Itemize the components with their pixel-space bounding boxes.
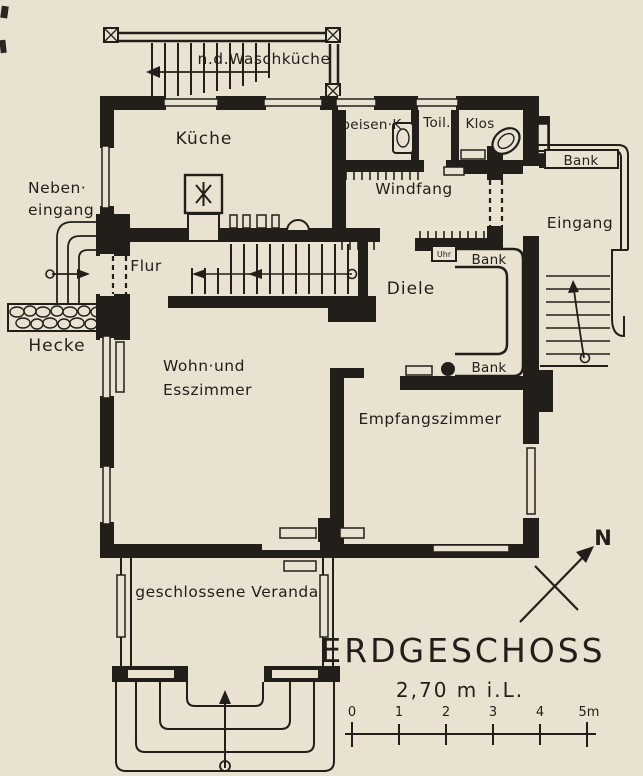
- label-clock: Uhr: [437, 250, 452, 259]
- compass-cross: [535, 566, 578, 610]
- veranda-window-pane: [117, 575, 125, 637]
- label-living-2: Esszimmer: [163, 381, 252, 399]
- pier-bottom-center: [318, 518, 338, 546]
- scale-tick-4: 4: [536, 705, 544, 720]
- label-basement-stairs: n.d.Waschküche: [198, 50, 331, 68]
- plan-title: ERDGESCHOSS: [320, 631, 605, 670]
- window-pane: [433, 545, 509, 552]
- main-staircase: [192, 244, 357, 294]
- label-veranda: geschlossene Veranda: [135, 583, 319, 601]
- window-pane: [116, 342, 124, 392]
- radiator: [406, 366, 432, 375]
- stair-direction-arrow: [192, 269, 357, 279]
- scan-marks: [0, 6, 9, 54]
- label-toilet: Toil.: [422, 115, 451, 131]
- label-reception: Empfangszimmer: [359, 410, 502, 428]
- scale-tick-0: 0: [348, 705, 356, 720]
- wall-stair-right: [358, 242, 368, 300]
- sink: [287, 220, 309, 231]
- window-pane: [264, 99, 322, 106]
- window-pane: [416, 99, 458, 106]
- label-hallway: Flur: [130, 257, 162, 275]
- label-side-entrance-2: eingang: [28, 201, 94, 219]
- scale-tick-2: 2: [442, 705, 450, 720]
- wall-kitchen-bottom: [100, 228, 380, 242]
- stair-treads: [192, 244, 348, 294]
- label-vestibule: Windfang: [375, 180, 453, 198]
- scale-bar: [345, 722, 596, 747]
- window-pane: [527, 448, 535, 514]
- window-pane: [164, 99, 218, 106]
- scale-tick-5: 5m: [579, 705, 600, 720]
- veranda-entry-arrow: [219, 690, 231, 771]
- wc-door-leaf: [444, 167, 464, 175]
- hedge-stones: [10, 306, 110, 329]
- window-pane: [336, 99, 376, 106]
- label-bench-top: Bank: [471, 252, 506, 268]
- label-living-1: Wohn·und: [163, 357, 245, 375]
- label-hall: Diele: [387, 279, 435, 299]
- pier-left-upper: [96, 214, 130, 256]
- label-pantry: Speisen·K: [333, 117, 403, 133]
- entrance-porch: [537, 145, 628, 366]
- label-north: N: [594, 526, 612, 550]
- porch-arrow: [568, 280, 590, 363]
- window-pane: [103, 466, 110, 524]
- label-side-entrance-1: Neben·: [28, 179, 86, 197]
- wall-toilet-wc: [451, 110, 459, 162]
- label-bench-porch: Bank: [563, 153, 598, 169]
- wall-stair-bottom: [168, 296, 330, 308]
- counter-units: [230, 215, 279, 228]
- wall-living-reception: [330, 368, 344, 544]
- window-pane: [102, 146, 109, 208]
- compass-needle: [520, 554, 586, 622]
- plan-subtitle: 2,70 m i.L.: [396, 678, 524, 702]
- label-entrance: Eingang: [547, 214, 613, 232]
- wc-door-leaf: [461, 150, 485, 159]
- wall-pantry-bottom: [332, 160, 424, 172]
- label-wc: Klos: [465, 116, 494, 132]
- floor-plan-sheet: n.d.Waschküche Küche Speisen·K Toil. Klo…: [0, 0, 643, 776]
- kitchen-cabinet: [188, 214, 219, 241]
- wall-living-reception-cap: [344, 368, 364, 378]
- column: [441, 362, 455, 376]
- floor-plan-drawing: n.d.Waschküche Küche Speisen·K Toil. Klo…: [0, 0, 643, 776]
- pier-porch-bottom: [537, 370, 553, 412]
- label-hedge: Hecke: [28, 336, 85, 356]
- label-kitchen: Küche: [176, 129, 233, 149]
- veranda-window-pane: [320, 575, 328, 637]
- side-entrance-path: [46, 222, 100, 304]
- scale-tick-1: 1: [395, 705, 403, 720]
- label-bench-bottom: Bank: [471, 360, 506, 376]
- wall-hall-bottom: [400, 376, 537, 390]
- window-pane: [103, 336, 110, 398]
- scale-tick-3: 3: [489, 705, 497, 720]
- wall-stair-step: [328, 296, 376, 322]
